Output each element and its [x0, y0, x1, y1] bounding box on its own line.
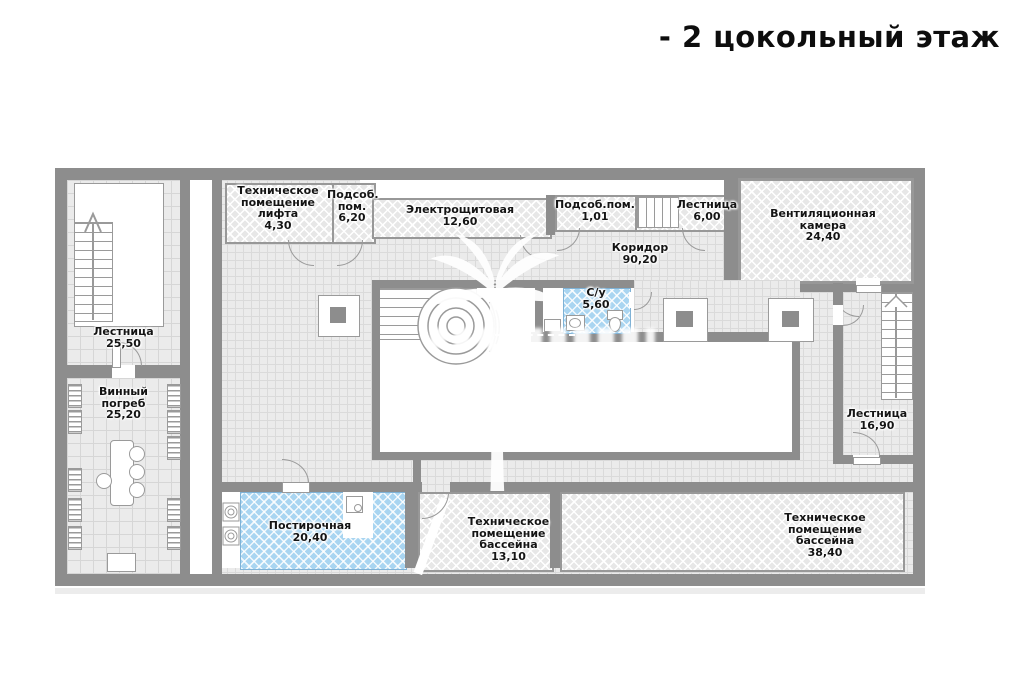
column — [676, 311, 693, 327]
washer-icon — [222, 502, 240, 522]
watermark-text-ghost — [430, 328, 655, 348]
wall — [180, 180, 190, 574]
room-label-staircase-1690: Лестница 16,90 — [841, 408, 913, 431]
wall — [724, 168, 738, 292]
floor-plan: Лестница 25,50 Техническое помещение лиф… — [55, 168, 925, 586]
wine-rack — [68, 468, 82, 492]
wall — [222, 482, 282, 492]
wall — [308, 482, 422, 492]
wall — [212, 180, 222, 574]
watermark-palm-icon — [415, 234, 575, 494]
wall — [792, 332, 800, 460]
room-label-wine-cellar: Винный погреб 25,20 — [67, 386, 180, 421]
door-leaf — [282, 482, 310, 493]
up-arrow-icon — [83, 208, 103, 323]
chair — [129, 482, 145, 498]
room-label-ventilation: Вентиляционная камера 24,40 — [738, 208, 908, 243]
wine-rack — [167, 526, 181, 550]
room-label-utility-101: Подсоб.пом. 1,01 — [555, 199, 635, 222]
room-label-laundry: Постирочная 20,40 — [245, 520, 375, 543]
up-arrow-icon — [883, 294, 909, 308]
sink-basin — [354, 504, 362, 512]
column — [782, 311, 799, 327]
room-label-corridor: Коридор 90,20 — [595, 242, 685, 265]
wine-rack — [68, 498, 82, 522]
room-label-pool-tech-3840: Техническое помещение бассейна 38,40 — [760, 512, 890, 558]
room-label-pool-tech-1310: Техническое помещение бассейна 13,10 — [451, 516, 566, 562]
washer-icon — [222, 526, 240, 546]
chair — [96, 473, 112, 489]
door-gap — [833, 305, 843, 325]
room-label-utility-620: Подсоб. пом. 6,20 — [327, 189, 377, 224]
door-leaf — [856, 285, 882, 293]
door-leaf — [853, 457, 881, 465]
column — [330, 307, 346, 323]
wine-rack — [167, 498, 181, 522]
wine-rack — [167, 436, 181, 460]
room-label-bathroom: С/у 5,60 — [563, 287, 629, 310]
room-label-elevator-tech: Техническое помещение лифта 4,30 — [223, 185, 333, 231]
room-label-electrical: Электрощитовая 12,60 — [372, 204, 548, 227]
shaft-void — [190, 180, 212, 574]
floor-plan-page: - 2 цокольный этаж — [0, 0, 1027, 685]
stair-treads — [881, 292, 913, 400]
wine-rack — [68, 526, 82, 550]
room-label-staircase-2550: Лестница 25,50 — [67, 326, 180, 349]
wall — [372, 280, 380, 460]
chair — [129, 464, 145, 480]
cabinet — [107, 553, 136, 572]
wall — [405, 492, 418, 568]
plan-shadow — [55, 588, 925, 594]
chair — [129, 446, 145, 462]
page-title: - 2 цокольный этаж — [560, 20, 1000, 54]
